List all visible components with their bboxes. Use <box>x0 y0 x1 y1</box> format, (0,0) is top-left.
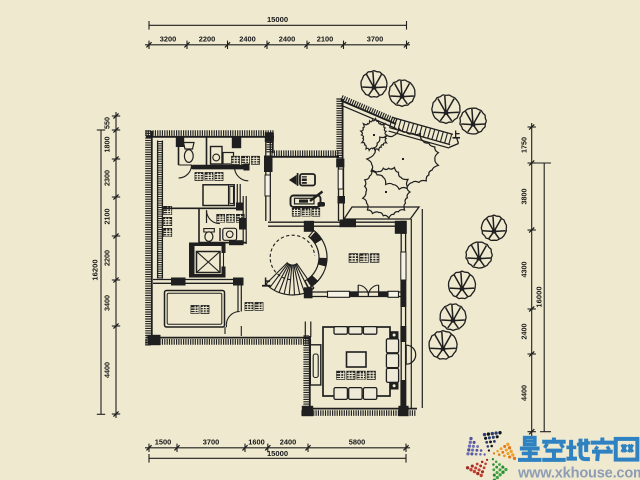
svg-text:2400: 2400 <box>280 438 296 447</box>
svg-text:5800: 5800 <box>349 438 365 447</box>
svg-text:1600: 1600 <box>248 438 264 447</box>
svg-text:2300: 2300 <box>103 170 112 186</box>
svg-text:3200: 3200 <box>160 35 176 44</box>
svg-text:550: 550 <box>103 117 112 129</box>
svg-text:1500: 1500 <box>155 438 171 447</box>
svg-text:16000: 16000 <box>535 286 544 307</box>
svg-text:4300: 4300 <box>520 262 529 278</box>
svg-text:2200: 2200 <box>199 35 215 44</box>
svg-text:3400: 3400 <box>103 295 112 311</box>
svg-text:www.xkhouse.com: www.xkhouse.com <box>517 466 640 480</box>
svg-text:4400: 4400 <box>520 385 529 401</box>
svg-text:16200: 16200 <box>91 259 100 280</box>
svg-text:2400: 2400 <box>520 324 529 340</box>
svg-text:4400: 4400 <box>103 362 112 378</box>
svg-text:3700: 3700 <box>367 35 383 44</box>
svg-text:1800: 1800 <box>103 137 112 153</box>
svg-text:3800: 3800 <box>520 189 529 205</box>
svg-text:2100: 2100 <box>317 35 333 44</box>
svg-text:2400: 2400 <box>279 35 295 44</box>
svg-text:15000: 15000 <box>267 449 288 458</box>
svg-text:2100: 2100 <box>103 209 112 225</box>
svg-text:1750: 1750 <box>520 137 529 153</box>
svg-text:2200: 2200 <box>103 250 112 266</box>
svg-text:15000: 15000 <box>267 15 288 24</box>
svg-text:3700: 3700 <box>203 438 219 447</box>
svg-text:2400: 2400 <box>239 35 255 44</box>
